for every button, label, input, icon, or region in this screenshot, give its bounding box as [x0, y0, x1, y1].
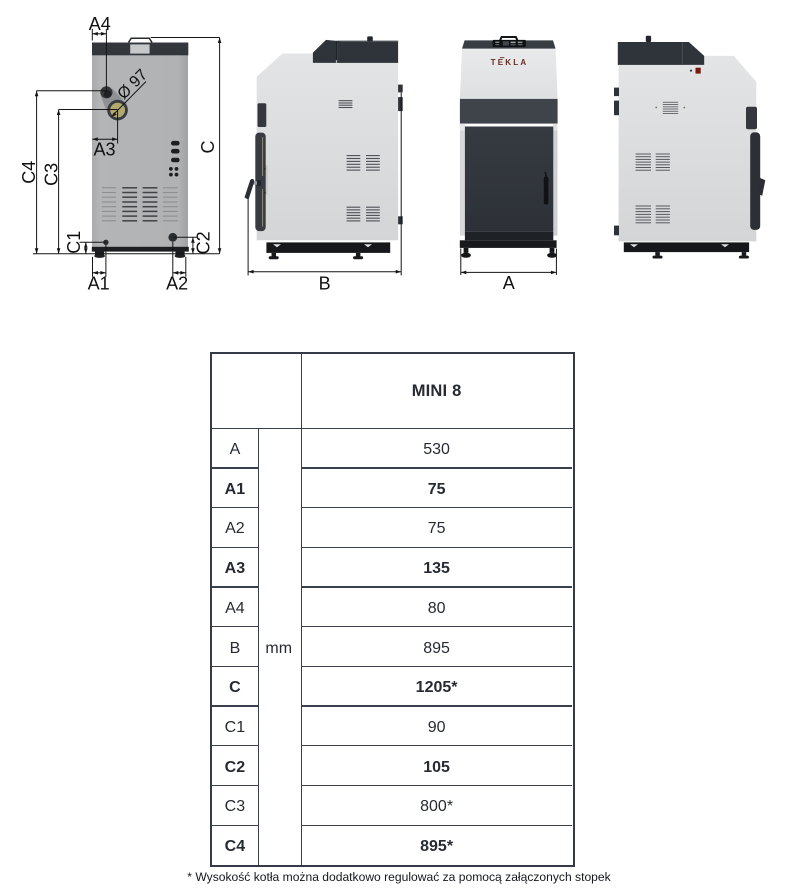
svg-text:A3: A3 — [93, 140, 115, 160]
svg-text:C: C — [198, 141, 218, 154]
svg-text:C4: C4 — [19, 161, 39, 184]
svg-text:C1: C1 — [64, 231, 84, 254]
svg-text:A: A — [503, 273, 515, 293]
svg-text:A2: A2 — [166, 273, 188, 293]
svg-text:C3: C3 — [41, 163, 61, 186]
svg-text:B: B — [319, 273, 331, 293]
svg-text:TEKLA: TEKLA — [491, 58, 529, 67]
svg-text:C2: C2 — [194, 231, 214, 254]
svg-text:A4: A4 — [89, 14, 111, 34]
svg-text:A1: A1 — [88, 273, 110, 293]
